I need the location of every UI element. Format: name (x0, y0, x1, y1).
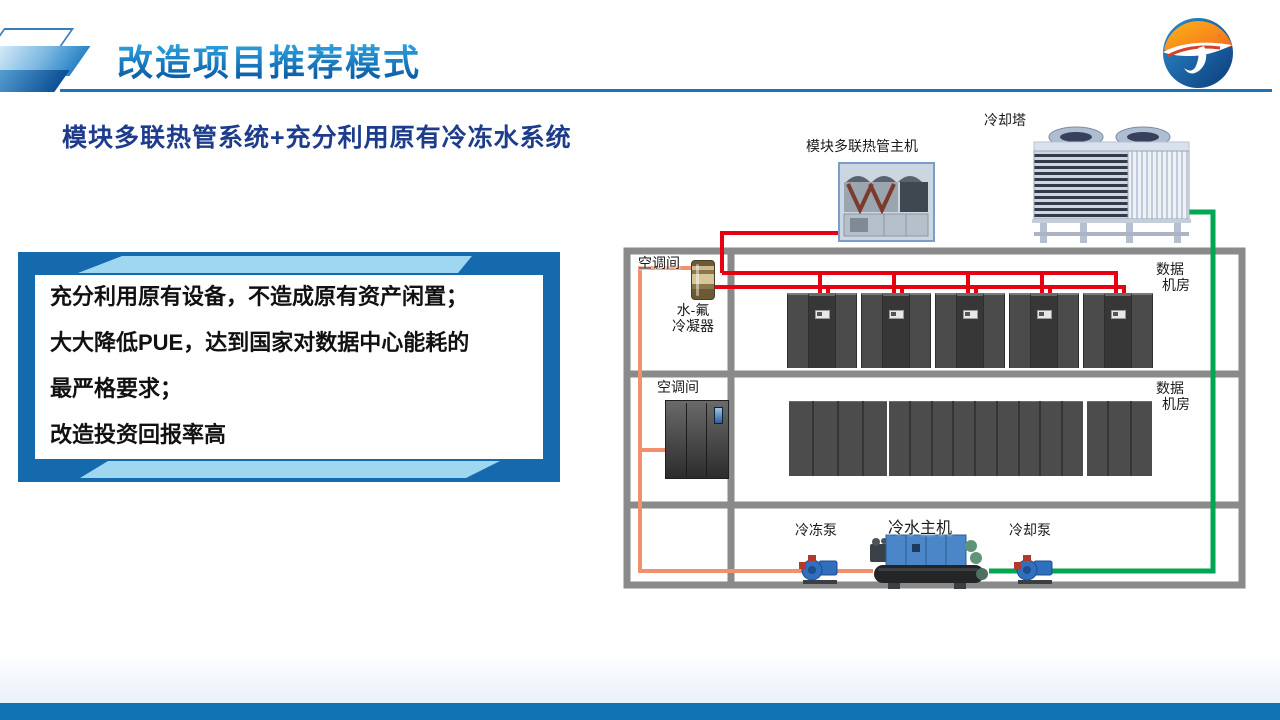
rack-row (789, 401, 887, 476)
rack-group (787, 293, 857, 368)
cooling-pump-image (1014, 553, 1056, 585)
data-room-2-label: 数据 机房 (1156, 380, 1190, 412)
server-rack (1063, 401, 1083, 476)
in-row-cooler (883, 293, 909, 368)
server-rack (1109, 401, 1129, 476)
rack-row (889, 401, 1083, 476)
cooling-pump-label: 冷却泵 (1009, 520, 1051, 540)
chiller-label: 冷水主机 (888, 514, 952, 538)
chilled-pump-image (799, 553, 841, 585)
slide: 改造项目推荐模式 模块多联热管系统+充分利用原有冷冻水系统 充分利用原有设备，不… (0, 0, 1280, 720)
footer-bar (0, 703, 1280, 720)
in-row-cooler (809, 293, 835, 368)
rack-row (1087, 401, 1152, 476)
server-rack (1009, 293, 1031, 368)
server-rack (835, 293, 857, 368)
data-room-1-line1: 数据 (1156, 261, 1190, 277)
data-room-2-line2: 机房 (1156, 396, 1190, 412)
server-rack (1132, 401, 1152, 476)
cooling-tower-image (1028, 124, 1195, 246)
server-rack (1083, 293, 1105, 368)
data-room-1-line2: 机房 (1156, 277, 1190, 293)
server-rack (1087, 401, 1107, 476)
server-rack (954, 401, 974, 476)
crac-unit-image (665, 400, 729, 479)
server-rack (889, 401, 909, 476)
ac-room-1-label: 空调间 (638, 253, 680, 273)
rack-group (861, 293, 931, 368)
server-rack (1041, 401, 1061, 476)
rack-group (1009, 293, 1079, 368)
server-rack (787, 293, 809, 368)
server-rack (1057, 293, 1079, 368)
footer-fade (0, 655, 1280, 703)
in-row-cooler (1105, 293, 1131, 368)
water-chiller-image (868, 532, 990, 590)
condenser-label-line1: 水-氟 (672, 302, 714, 318)
water-fluorine-condenser-image (691, 260, 715, 300)
server-rack (839, 401, 862, 476)
server-rack (1020, 401, 1040, 476)
server-rack (861, 293, 883, 368)
cooler-display (815, 310, 830, 319)
server-rack (1131, 293, 1153, 368)
server-rack (789, 401, 812, 476)
rack-group (1083, 293, 1153, 368)
server-rack (935, 293, 957, 368)
server-rack (864, 401, 887, 476)
heat-pipe-main-unit-image (838, 162, 935, 242)
chilled-pump-label: 冷冻泵 (795, 520, 837, 540)
in-row-cooler (957, 293, 983, 368)
cooler-display (1037, 310, 1052, 319)
server-rack (933, 401, 953, 476)
in-row-cooler (1031, 293, 1057, 368)
server-rack (998, 401, 1018, 476)
condenser-label: 水-氟 冷凝器 (672, 302, 714, 334)
rack-group (935, 293, 1005, 368)
server-rack (976, 401, 996, 476)
cooler-display (963, 310, 978, 319)
cooler-display (889, 310, 904, 319)
cooler-display (1111, 310, 1126, 319)
server-rack (983, 293, 1005, 368)
server-rack (909, 293, 931, 368)
cooling-tower-label: 冷却塔 (984, 110, 1026, 130)
crac-display (714, 407, 723, 424)
condenser-label-line2: 冷凝器 (672, 318, 714, 334)
data-room-1-label: 数据 机房 (1156, 261, 1190, 293)
server-rack (814, 401, 837, 476)
heat-pipe-unit-label: 模块多联热管主机 (806, 136, 918, 156)
server-rack (911, 401, 931, 476)
data-room-2-line1: 数据 (1156, 380, 1190, 396)
ac-room-2-label: 空调间 (657, 377, 699, 397)
